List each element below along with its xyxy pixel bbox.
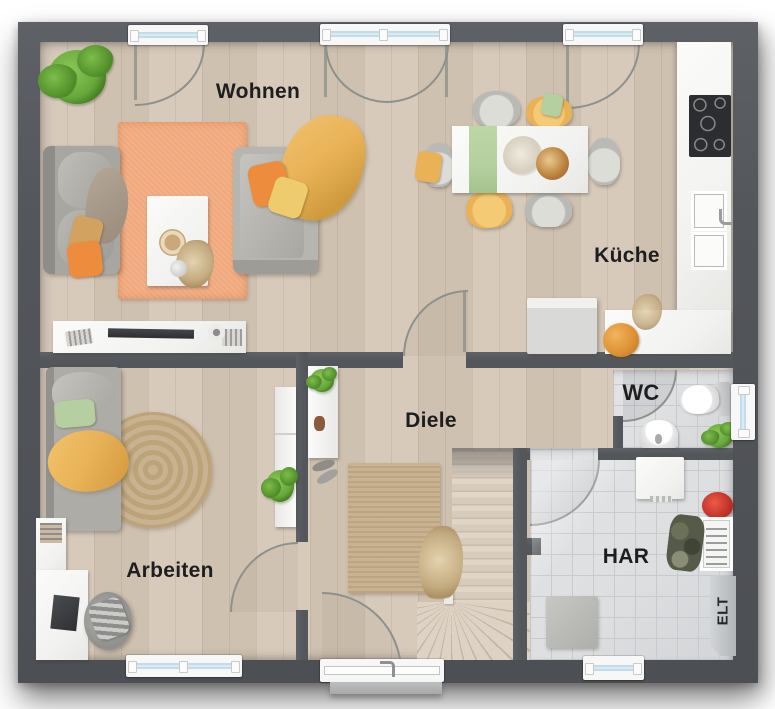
wall-stair-utility [513, 448, 527, 660]
window-glass [134, 32, 202, 38]
window-nub [633, 663, 642, 675]
daybed-pillow-green [54, 398, 96, 428]
water-heater-vent [650, 496, 672, 502]
decor-roll [208, 324, 225, 341]
window-nub [179, 661, 188, 673]
window-glass [588, 665, 639, 671]
room-label-utility: HAR [603, 545, 649, 569]
room-label-kitchen: Küche [594, 244, 660, 268]
entrance-step [330, 682, 442, 694]
office-monitor [50, 595, 79, 632]
cooktop [689, 95, 731, 157]
door-leaf-living [463, 292, 466, 352]
fern-plant [48, 50, 106, 104]
wall-office-east-lower [296, 610, 308, 660]
window-nub [130, 30, 139, 42]
water-heater [636, 457, 684, 499]
staircase-top-shadow [452, 448, 513, 478]
dining-chair-right-gray [588, 138, 620, 185]
window-leaf-living-left [134, 44, 137, 100]
window-nub [565, 29, 574, 41]
window-utility-bottom [583, 656, 644, 680]
kitchen-cabinet [527, 298, 597, 354]
dining-chair-bottom-gray [525, 193, 572, 227]
wall-wc-west [613, 416, 623, 450]
wc-plant [706, 424, 733, 448]
front-door [320, 659, 444, 682]
kitchen-faucet [719, 209, 733, 225]
books-stack-right [222, 329, 242, 346]
window-leaf-kitchen [566, 44, 569, 103]
sofa-pillow-orange [66, 240, 104, 279]
window-office-bottom [126, 655, 242, 677]
office-shelf-divider-1 [275, 433, 296, 435]
room-label-hallway: Diele [405, 409, 457, 433]
room-label-living: Wohnen [216, 80, 300, 104]
window-nub [439, 29, 448, 41]
elt-cabinet: ELT [710, 576, 736, 656]
tools [706, 523, 727, 565]
window-living-left [128, 25, 208, 45]
wall-stub-utility [527, 538, 541, 555]
tv [108, 328, 194, 338]
office-books [40, 523, 62, 543]
wall-living-south [40, 352, 403, 368]
office-shelf-plant [266, 470, 294, 502]
window-leaf-terrace-left [324, 44, 327, 97]
wall-kitchen-south [466, 352, 733, 368]
window-glass [569, 31, 637, 37]
towel-yellow [414, 150, 443, 183]
window-nub [128, 661, 137, 673]
kitchen-sink-2 [691, 232, 727, 270]
window-nub [322, 29, 331, 41]
window-nub [197, 30, 206, 42]
window-kitchen [563, 24, 643, 45]
amber-bowl [536, 147, 569, 180]
dining-chair-top-gray [473, 91, 520, 127]
elt-label: ELT [715, 597, 732, 626]
floorplan: ELT [0, 0, 775, 709]
fruit-basket [603, 323, 639, 357]
wc-sink-faucet [655, 434, 662, 444]
table-runner [469, 126, 497, 193]
window-leaf-terrace-right [445, 44, 448, 97]
red-tool-bowl [702, 492, 733, 519]
window-nub [738, 386, 750, 395]
window-wc-right [731, 384, 755, 440]
coffee-table-vase [170, 260, 187, 277]
hall-shelf-vase [314, 416, 325, 431]
window-nub [231, 661, 240, 673]
room-label-wc: WC [622, 380, 659, 406]
front-door-handle [380, 661, 395, 677]
ventilation-unit [546, 596, 598, 648]
window-nub [738, 429, 750, 438]
window-mullion [379, 29, 388, 41]
window-terrace-double [320, 24, 450, 45]
window-nub [632, 29, 641, 41]
hall-shelf-plant [310, 369, 334, 392]
window-nub [585, 663, 594, 675]
room-label-office: Arbeiten [126, 559, 214, 583]
office-shelf-right [275, 387, 296, 527]
window-glass [740, 390, 746, 434]
